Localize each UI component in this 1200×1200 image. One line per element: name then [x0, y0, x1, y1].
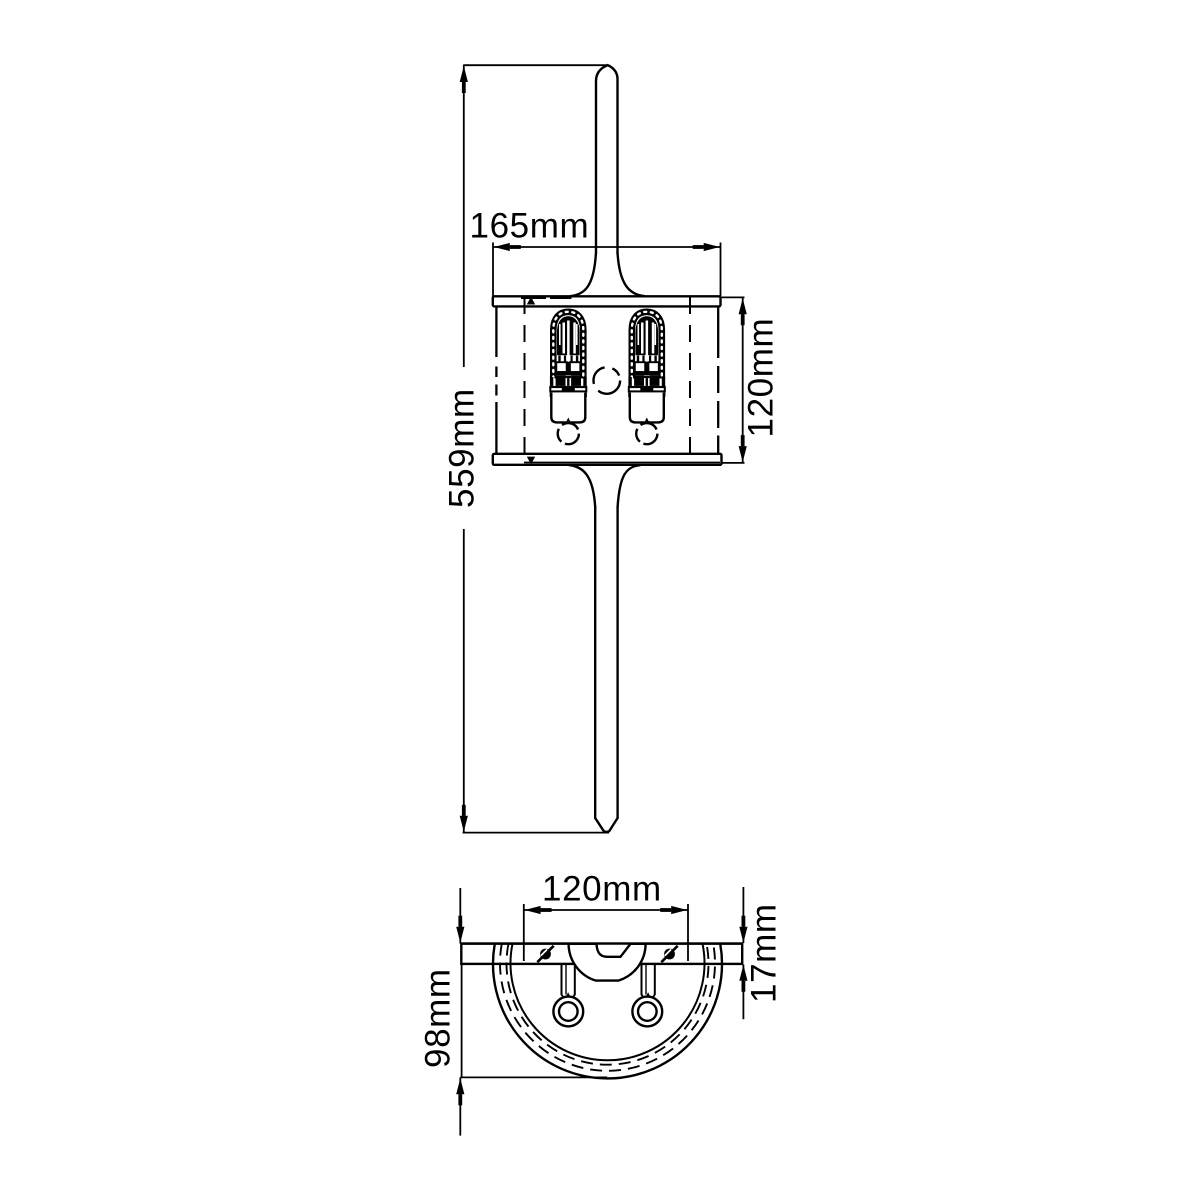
svg-text:98mm: 98mm [419, 968, 458, 1068]
svg-text:17mm: 17mm [745, 903, 784, 1003]
svg-text:559mm: 559mm [443, 388, 482, 508]
svg-text:120mm: 120mm [542, 870, 662, 909]
svg-text:165mm: 165mm [470, 207, 590, 246]
svg-text:120mm: 120mm [742, 318, 781, 438]
